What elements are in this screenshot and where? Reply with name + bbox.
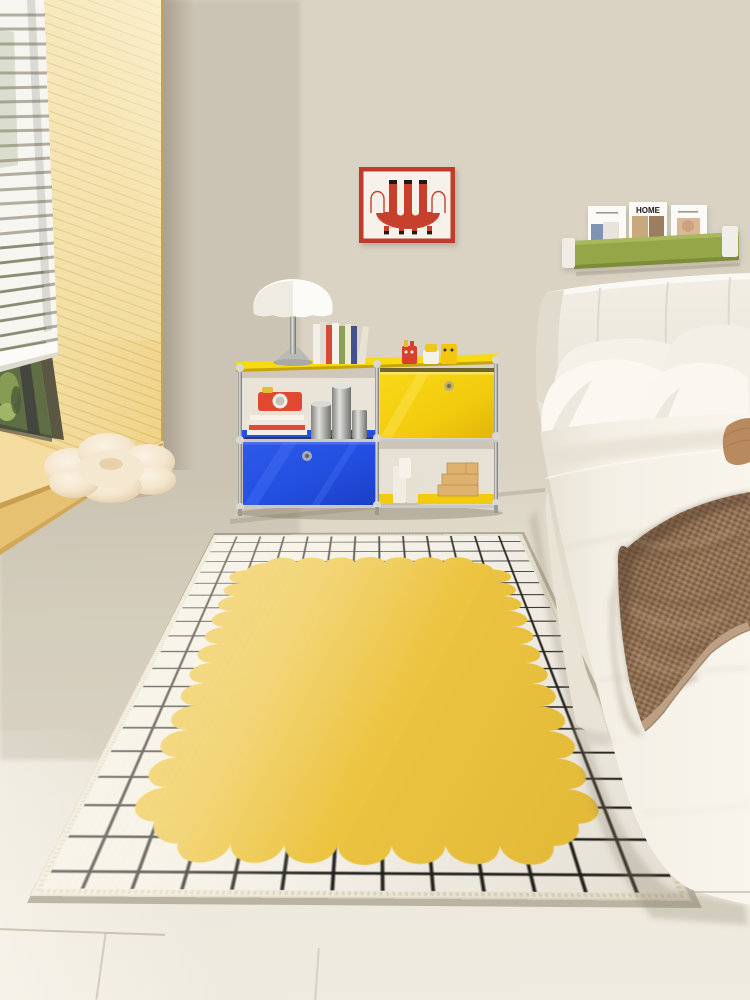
svg-text:HOME: HOME (636, 206, 661, 215)
